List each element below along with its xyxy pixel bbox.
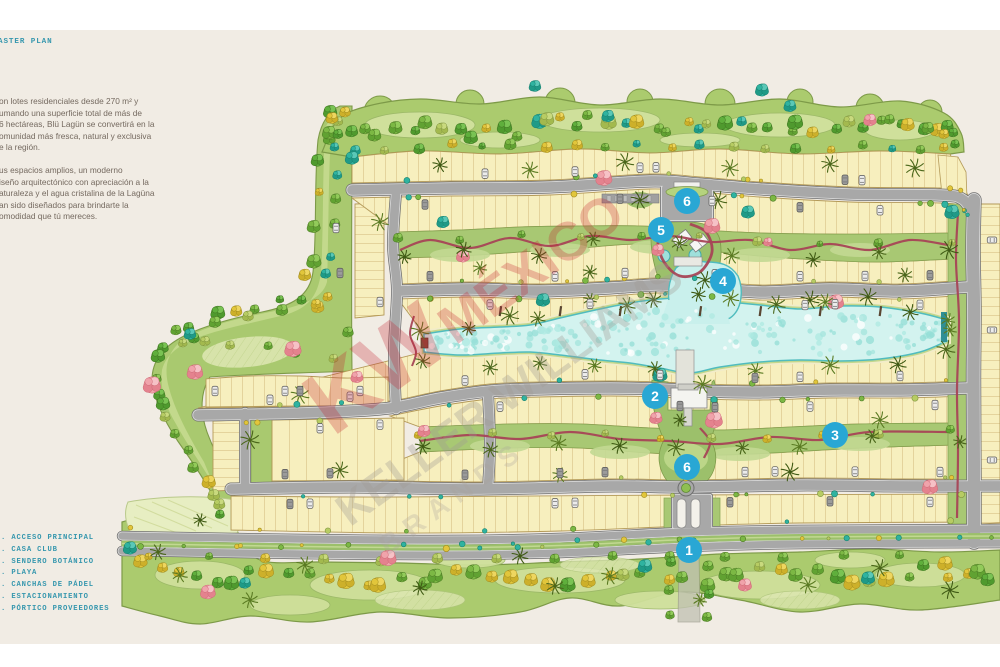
svg-text:4: 4 — [719, 273, 727, 289]
svg-text:2: 2 — [651, 388, 659, 404]
svg-text:3: 3 — [831, 427, 839, 443]
svg-text:6: 6 — [683, 193, 691, 209]
svg-text:1: 1 — [685, 542, 693, 558]
svg-text:5: 5 — [657, 222, 665, 238]
svg-text:6: 6 — [683, 459, 691, 475]
